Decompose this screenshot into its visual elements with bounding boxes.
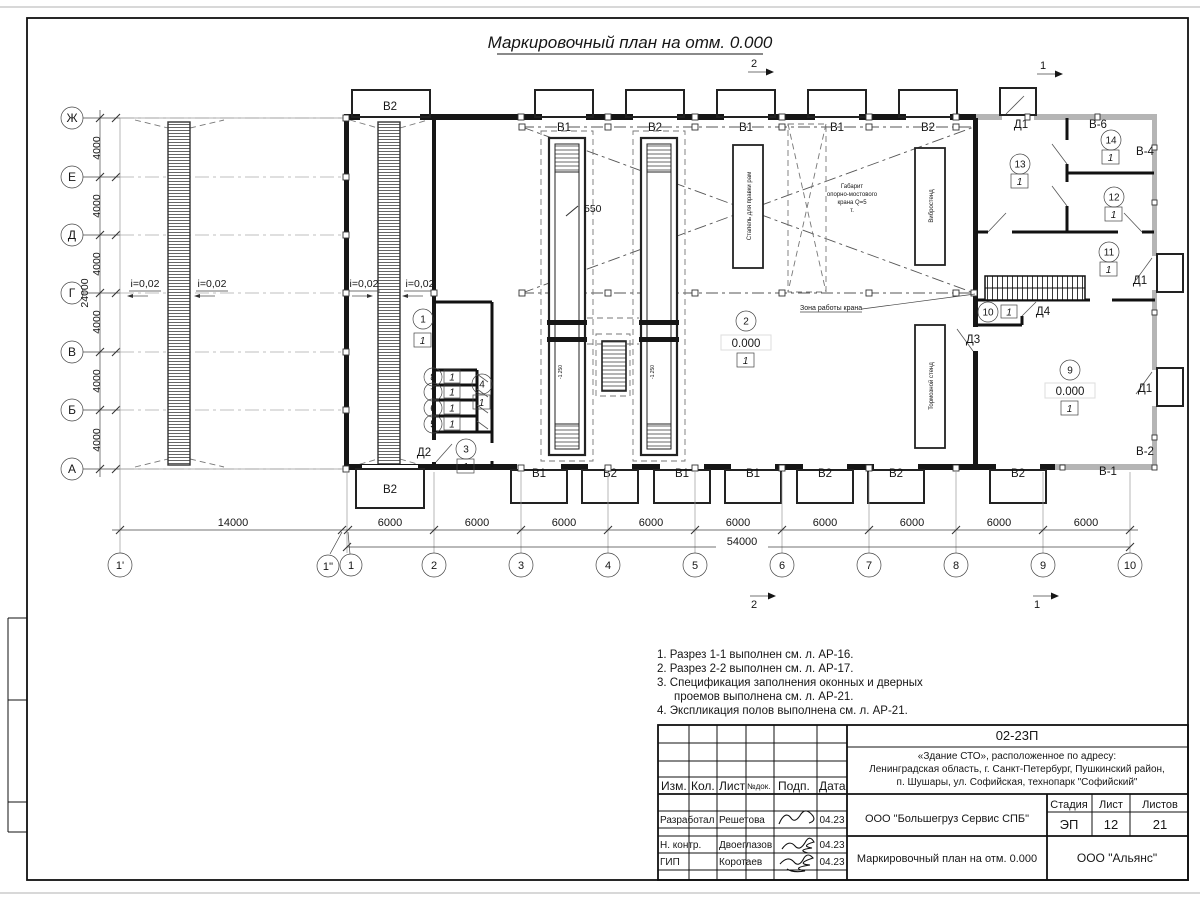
col-axis-label: 1' xyxy=(116,560,124,572)
window-label: В-2 xyxy=(1136,446,1154,458)
equipment-label: Стапель для правки рам xyxy=(747,172,753,241)
col-axis-bubbles: 1' 1'' 1 2 3 4 5 6 7 8 9 10 xyxy=(108,532,1142,577)
role-ncontrol: Н. контр. xyxy=(660,840,701,851)
room-number: 10 xyxy=(982,308,994,319)
bay-dim: 6000 xyxy=(1074,517,1098,529)
header-date: Дата xyxy=(819,779,846,793)
floor-type: 1 xyxy=(449,388,455,399)
row-axis-ticks xyxy=(96,114,120,473)
col-extension-lines xyxy=(120,469,1130,553)
pit-left: -1.250 xyxy=(541,131,593,461)
doc-title: Маркировочный план на отм. 0.000 xyxy=(857,853,1037,865)
floor-type: 1 xyxy=(449,404,455,415)
room-number: 11 xyxy=(1104,248,1115,259)
bay-dim-labels: 14000 6000 6000 6000 6000 6000 6000 6000… xyxy=(218,517,1099,548)
gate-label: В1 xyxy=(746,468,760,480)
gate-label: В2 xyxy=(921,122,935,134)
notes: 1. Разрез 1-1 выполнен см. л. АР-16. 2. … xyxy=(657,649,923,717)
date-ncontrol: 04.23 xyxy=(819,840,844,851)
door-label: Д1 xyxy=(1133,275,1147,287)
note-line: 1. Разрез 1-1 выполнен см. л. АР-16. xyxy=(657,649,854,661)
floor-type: 1 xyxy=(1111,210,1117,221)
row-axes: Ж Е Д Г В Б А 4000 4000 4000 4000 4000 4… xyxy=(61,107,346,480)
slope-label: i=0,02 xyxy=(350,278,379,290)
elevation-label: 0.000 xyxy=(1056,386,1085,398)
col-axis-label: 5 xyxy=(692,560,698,572)
row-axis-lines xyxy=(120,118,346,469)
row-axis-label: Д xyxy=(68,228,76,242)
plan-canvas: Маркировочный план на отм. 0.000 2 1 2 1… xyxy=(0,0,1200,900)
header-doc: №док. xyxy=(747,782,770,791)
slope-label: i=0,02 xyxy=(198,278,227,290)
pit-elevation: -1.250 xyxy=(650,365,656,379)
room-number: 5 xyxy=(430,420,436,431)
crane-gabarit-text: Габарит опорно-мостового крана Q=5 т. xyxy=(827,184,878,214)
floor-type: 1 xyxy=(1106,265,1112,276)
window-label: В-1 xyxy=(1099,466,1117,478)
gate-label: В1 xyxy=(675,468,689,480)
room-number: 3 xyxy=(463,445,469,456)
inspection-pits: -1.250 -1.250 550 xyxy=(541,131,685,461)
role-developer: Разработал xyxy=(660,814,715,826)
row-dim: 4000 xyxy=(91,310,103,334)
col-axis-label: 4 xyxy=(605,560,611,572)
gate-label: В2 xyxy=(1011,468,1025,480)
floor-type: 1 xyxy=(743,356,749,367)
crane-text-line: т. xyxy=(850,208,854,214)
col-axis-label: 3 xyxy=(518,560,524,572)
row-axis-label: А xyxy=(68,462,76,476)
bay-dim: 6000 xyxy=(987,517,1011,529)
door-label: Д4 xyxy=(1036,306,1051,318)
signatures xyxy=(779,811,814,872)
col-axis-label: 7 xyxy=(866,560,872,572)
header-kol: Кол. xyxy=(691,779,715,793)
title-block: 02-23П «Здание СТО», расположенное по ад… xyxy=(658,725,1188,880)
pit-elevation: -1.250 xyxy=(558,365,564,379)
section-mark-2-bottom: 2 xyxy=(751,599,757,611)
row-dim: 4000 xyxy=(91,428,103,452)
bay-dim: 6000 xyxy=(552,517,576,529)
room-13: 13 1 xyxy=(1010,154,1030,188)
room-number: 14 xyxy=(1105,136,1117,147)
role-gip: ГИП xyxy=(660,857,680,868)
room-4: 4 1 xyxy=(472,374,492,409)
row-dim: 4000 xyxy=(91,136,103,160)
room-number: 4 xyxy=(479,380,485,391)
header-list: Лист xyxy=(719,779,746,793)
bay-dim: 14000 xyxy=(218,517,249,529)
gate-label: В2 xyxy=(648,122,662,134)
section-mark-1-bottom: 1 xyxy=(1034,599,1040,611)
object-address-line: Ленинградская область, г. Санкт-Петербур… xyxy=(869,763,1165,775)
sheet-header: Лист xyxy=(1099,799,1123,811)
gate-label: В2 xyxy=(383,484,397,496)
floor-type: 1 xyxy=(449,420,455,431)
door-label: Д1 xyxy=(1014,119,1028,131)
company-name: ООО "Альянс" xyxy=(1077,851,1157,865)
equipment-label: Тормозной стенд xyxy=(928,362,935,410)
room-number: 12 xyxy=(1108,193,1120,204)
floor-type: 1 xyxy=(1017,177,1023,188)
col-axis-label: 8 xyxy=(953,560,959,572)
floor-type: 1 xyxy=(1108,153,1114,164)
org-name: ООО "Большегруз Сервис СПБ" xyxy=(865,813,1029,825)
name-developer: Решетова xyxy=(719,815,765,826)
gate-label: В1 xyxy=(557,122,571,134)
gate-label: В2 xyxy=(889,468,903,480)
row-dim: 4000 xyxy=(91,194,103,218)
header-sign: Подп. xyxy=(778,779,810,793)
section-mark-2-top: 2 xyxy=(751,58,757,70)
bay-dim: 6000 xyxy=(813,517,837,529)
note-line: проемов выполнена см. л. АР-21. xyxy=(674,691,853,703)
room-12: 12 1 xyxy=(1104,187,1124,221)
header-izm: Изм. xyxy=(661,779,687,793)
row-dim: 4000 xyxy=(91,252,103,276)
elevation-label: 0.000 xyxy=(732,338,761,350)
right-wall-openings: Д1 Д1 В-4 В-2 xyxy=(1133,146,1183,458)
note-line: 4. Экспликация полов выполнена см. л. АР… xyxy=(657,705,908,717)
bottom-gate-4: В1 xyxy=(725,463,781,503)
ramp-strip-left xyxy=(168,122,190,465)
col-axis-label: 10 xyxy=(1124,560,1136,572)
pit-right: -1.250 xyxy=(633,131,685,461)
col-axis-label: 2 xyxy=(431,560,437,572)
bottom-gate-6: В2 xyxy=(868,463,924,503)
room-5: 5 1 xyxy=(424,415,460,433)
left-margin-table xyxy=(8,618,27,832)
floor-type: 1 xyxy=(1006,308,1012,319)
note-line: 2. Разрез 2-2 выполнен см. л. АР-17. xyxy=(657,663,854,675)
crane-zone-label: Зона работы крана xyxy=(800,304,862,312)
crane-text-line: крана Q=5 xyxy=(837,200,867,206)
room-11: 11 1 xyxy=(1099,242,1119,276)
bay-dim: 6000 xyxy=(639,517,663,529)
object-address-line: п. Шушары, ул. Софийская, технопарк "Соф… xyxy=(897,776,1138,788)
drawing-sheet: Маркировочный план на отм. 0.000 2 1 2 1… xyxy=(0,0,1200,900)
room-10: 10 1 xyxy=(978,302,1017,322)
crane-text-line: Габарит xyxy=(841,184,864,190)
date-developer: 04.23 xyxy=(819,815,844,826)
door-label: Д3 xyxy=(966,334,980,346)
row-axis-label: Г xyxy=(69,286,76,300)
stage-value: ЭП xyxy=(1060,817,1079,832)
drawing-title: Маркировочный план на отм. 0.000 xyxy=(488,33,773,52)
slope-label: i=0,02 xyxy=(406,278,435,290)
row-axis-label: Ж xyxy=(66,111,77,125)
gate-label: В2 xyxy=(818,468,832,480)
sheet-number: 12 xyxy=(1104,817,1118,832)
crane-text-line: опорно-мостового xyxy=(827,192,878,198)
stage-header: Стадия xyxy=(1050,799,1088,811)
bay-dim: 6000 xyxy=(900,517,924,529)
gate-label: В1 xyxy=(739,122,753,134)
gate-label: В2 xyxy=(383,101,397,113)
floor-type: 1 xyxy=(479,398,485,409)
col-axis-label: 6 xyxy=(779,560,785,572)
col-axis-label: 1 xyxy=(348,560,354,572)
floor-type: 1 xyxy=(463,462,469,473)
room-2: 2 0.000 1 xyxy=(721,311,771,367)
row-total-dim: 24000 xyxy=(79,278,91,307)
room-9: 9 0.000 1 xyxy=(1045,360,1095,415)
door-label: Д1 xyxy=(1138,383,1152,395)
bay-dim: 6000 xyxy=(726,517,750,529)
pit-middle-stair xyxy=(587,318,639,396)
section-mark-1-top: 1 xyxy=(1040,60,1046,72)
total-dim: 54000 xyxy=(727,536,758,548)
sheets-header: Листов xyxy=(1142,799,1178,811)
col-axes: 14000 6000 6000 6000 6000 6000 6000 6000… xyxy=(108,469,1142,577)
floor-type: 1 xyxy=(449,373,455,384)
room-number: 6 xyxy=(430,404,436,415)
room-number: 7 xyxy=(430,388,436,399)
row-dim: 4000 xyxy=(91,369,103,393)
bottom-gate-5: В2 xyxy=(797,463,853,503)
pit-dim-label: 550 xyxy=(584,203,602,215)
gate-label: В1 xyxy=(830,122,844,134)
row-axis-label: Б xyxy=(68,403,76,417)
room-1: 1 1 xyxy=(413,309,433,347)
bay-dim: 6000 xyxy=(378,517,402,529)
room-number: 13 xyxy=(1014,160,1026,171)
floor-type: 1 xyxy=(420,336,426,347)
bottom-gate-7: В2 xyxy=(990,463,1046,503)
row-axis-label: Е xyxy=(68,170,76,184)
room-number: 8 xyxy=(430,373,436,384)
ramp-strip-right xyxy=(378,122,400,465)
ramp-area: i=0,02 i=0,02 i=0,02 i=0,02 xyxy=(120,118,436,469)
gate-label: В1 xyxy=(532,468,546,480)
room-6: 6 1 xyxy=(424,399,460,417)
bay-dim: 6000 xyxy=(465,517,489,529)
room-number: 2 xyxy=(743,317,749,328)
room-number: 1 xyxy=(420,315,426,326)
sheets-total: 21 xyxy=(1153,817,1167,832)
name-ncontrol: Двоеглазов xyxy=(719,840,772,851)
door-label: Д2 xyxy=(417,447,431,459)
window-label: В-6 xyxy=(1089,119,1107,131)
room-14: 14 1 xyxy=(1101,130,1121,164)
col-axis-label: 9 xyxy=(1040,560,1046,572)
bottom-gate-3: В1 xyxy=(654,463,710,503)
col-axis-label: 1'' xyxy=(323,561,333,573)
date-gip: 04.23 xyxy=(819,857,844,868)
row-axis-label: В xyxy=(68,345,76,359)
room-number: 9 xyxy=(1067,366,1073,377)
note-line: 3. Спецификация заполнения оконных и две… xyxy=(657,677,923,689)
object-address-line: «Здание СТО», расположенное по адресу: xyxy=(918,751,1116,762)
floor-type: 1 xyxy=(1067,404,1073,415)
name-gip: Коротаев xyxy=(719,857,762,868)
door-d1-top: Д1 xyxy=(1000,88,1036,131)
equipment: Стапель для правки рам Вибростенд Тормоз… xyxy=(733,145,945,448)
equipment-label: Вибростенд xyxy=(929,189,935,223)
slope-label: i=0,02 xyxy=(131,278,160,290)
project-code: 02-23П xyxy=(996,728,1039,743)
